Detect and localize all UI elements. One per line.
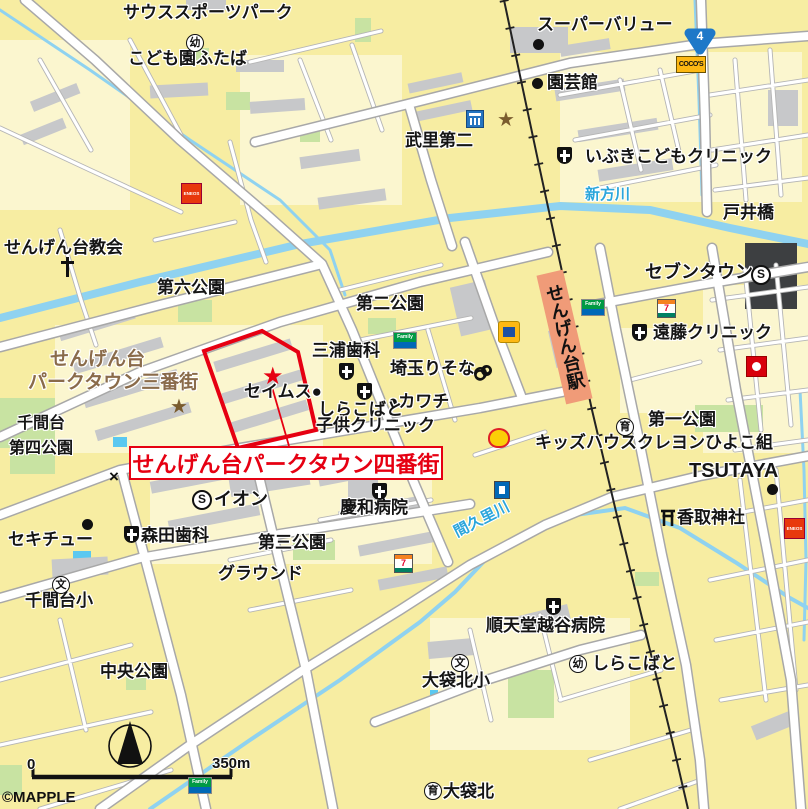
super-s-icon-seventown: S: [751, 265, 771, 285]
nursery-icon: 育: [424, 782, 442, 800]
label-aeon: イオン: [214, 490, 268, 510]
seven-eleven-icon: 7: [394, 554, 413, 573]
label-ground: グラウンド: [218, 565, 303, 584]
label-obukurokita-elem: 大袋北小: [422, 672, 490, 691]
school-icon: 文: [52, 576, 70, 594]
label-senmandai-line2: 第四公園: [9, 440, 73, 458]
nursery-icon: 育: [616, 418, 634, 436]
idemitsu-gas-icon: [746, 356, 767, 377]
highlight-star: ★: [262, 365, 284, 389]
label-kodomoen-futaba: こども園ふたば: [128, 50, 247, 69]
label-sengendai-church: せんげん台教会: [4, 239, 123, 258]
poi-dot-engeikan: [532, 78, 543, 89]
label-south-sports-park: サウススポーツパーク: [123, 4, 293, 23]
church-cross-icon: [60, 257, 74, 277]
school-icon: 文: [451, 654, 469, 672]
hospital-icon-morita: [124, 526, 139, 543]
label-takesato-daini: 武里第二: [405, 132, 473, 151]
label-engeikan: 園芸館: [547, 74, 598, 93]
poi-dot-super-value: [533, 39, 544, 50]
hospital-icon-shirakobato: [357, 383, 372, 400]
label-keiwa-hospital: 慶和病院: [340, 499, 408, 518]
label-super-value: スーパーバリュー: [537, 16, 673, 35]
eneos-icon: ENEOS: [784, 518, 805, 539]
kindergarten-icon: 幼: [569, 655, 587, 673]
label-shinkata-river: 新方川: [585, 187, 630, 204]
familymart-icon: Family: [188, 777, 212, 794]
label-juntendo-hospital: 順天堂越谷病院: [486, 617, 605, 636]
kindergarten-icon: 幼: [186, 34, 204, 52]
label-parktown3-line2: パークタウン三番街: [28, 373, 198, 394]
shell-gas-icon: [488, 428, 510, 448]
route-4-number: 4: [688, 29, 712, 43]
label-saitama-resona: 埼玉りそな: [390, 360, 475, 379]
label-kids-house: キッズハウスクレヨンひよこ組: [535, 434, 773, 453]
seven-eleven-icon: 7: [657, 299, 676, 318]
lawson-icon: [494, 481, 510, 499]
landmark-star-takesato: ★: [497, 110, 515, 130]
label-miura-dental: 三浦歯科: [312, 342, 380, 361]
label-katori-shrine: 香取神社: [677, 509, 745, 528]
label-dairoku-park: 第六公園: [157, 279, 225, 298]
label-toi-bridge: 戸井橋: [723, 204, 774, 223]
label-senmandai-line1: 千間台: [17, 415, 65, 433]
label-tsutaya: TSUTAYA: [689, 460, 778, 482]
x-mark: ×: [109, 468, 119, 485]
amusement-icon: [498, 321, 520, 343]
label-daiichi-park: 第一公園: [648, 411, 716, 430]
landmark-star-parktown3: ★: [170, 397, 188, 417]
label-sekichu: セキチュー: [8, 531, 93, 550]
hospital-icon-keiwa: [372, 483, 387, 500]
label-daini-park: 第二公園: [356, 295, 424, 314]
cocos-sign: COCO'S: [676, 56, 706, 73]
label-chuo-park: 中央公園: [100, 663, 168, 682]
hospital-icon-juntendo: [546, 598, 561, 615]
scale-start: 0: [27, 756, 35, 773]
hospital-icon-endo: [632, 324, 647, 341]
label-seven-town: セブンタウン: [645, 263, 753, 283]
poi-dot-sekichu: [82, 519, 93, 530]
label-shirakobato-clinic-2: 子供クリニック: [316, 417, 435, 436]
map-canvas[interactable]: せんげん台駅 サウススポーツパーク こども園ふたば スーパーバリュー 園芸館 武…: [0, 0, 808, 809]
super-s-icon-aeon: S: [192, 490, 212, 510]
label-obukurokita: 大袋北: [443, 783, 494, 802]
label-parktown3-line1: せんげん台: [50, 350, 145, 371]
store-icon-takesato: [466, 110, 484, 128]
hospital-icon-miura: [339, 363, 354, 380]
label-endo-clinic: 遠藤クリニック: [653, 324, 772, 343]
resona-bank-icon: [474, 365, 488, 379]
map-attribution: ©MAPPLE: [2, 789, 76, 806]
label-morita-dental: 森田歯科: [141, 527, 209, 546]
label-ibuki-clinic: いぶきこどもクリニック: [585, 148, 772, 167]
label-senmandai-elem: 千間台小: [25, 592, 93, 611]
familymart-icon: Family: [581, 299, 605, 316]
label-shirakobato: しらこばと: [592, 655, 677, 674]
label-daisan-park: 第三公園: [258, 534, 326, 553]
highlight-label-box: せんげん台パークタウン四番街: [129, 446, 443, 480]
hospital-icon-ibuki: [557, 147, 572, 164]
scale-end: 350m: [212, 755, 250, 772]
highlight-label: せんげん台パークタウン四番街: [132, 447, 439, 479]
familymart-icon: Family: [393, 332, 417, 349]
poi-dot-tsutaya: [767, 484, 778, 495]
compass-icon: [109, 721, 151, 767]
eneos-icon: ENEOS: [181, 183, 202, 204]
